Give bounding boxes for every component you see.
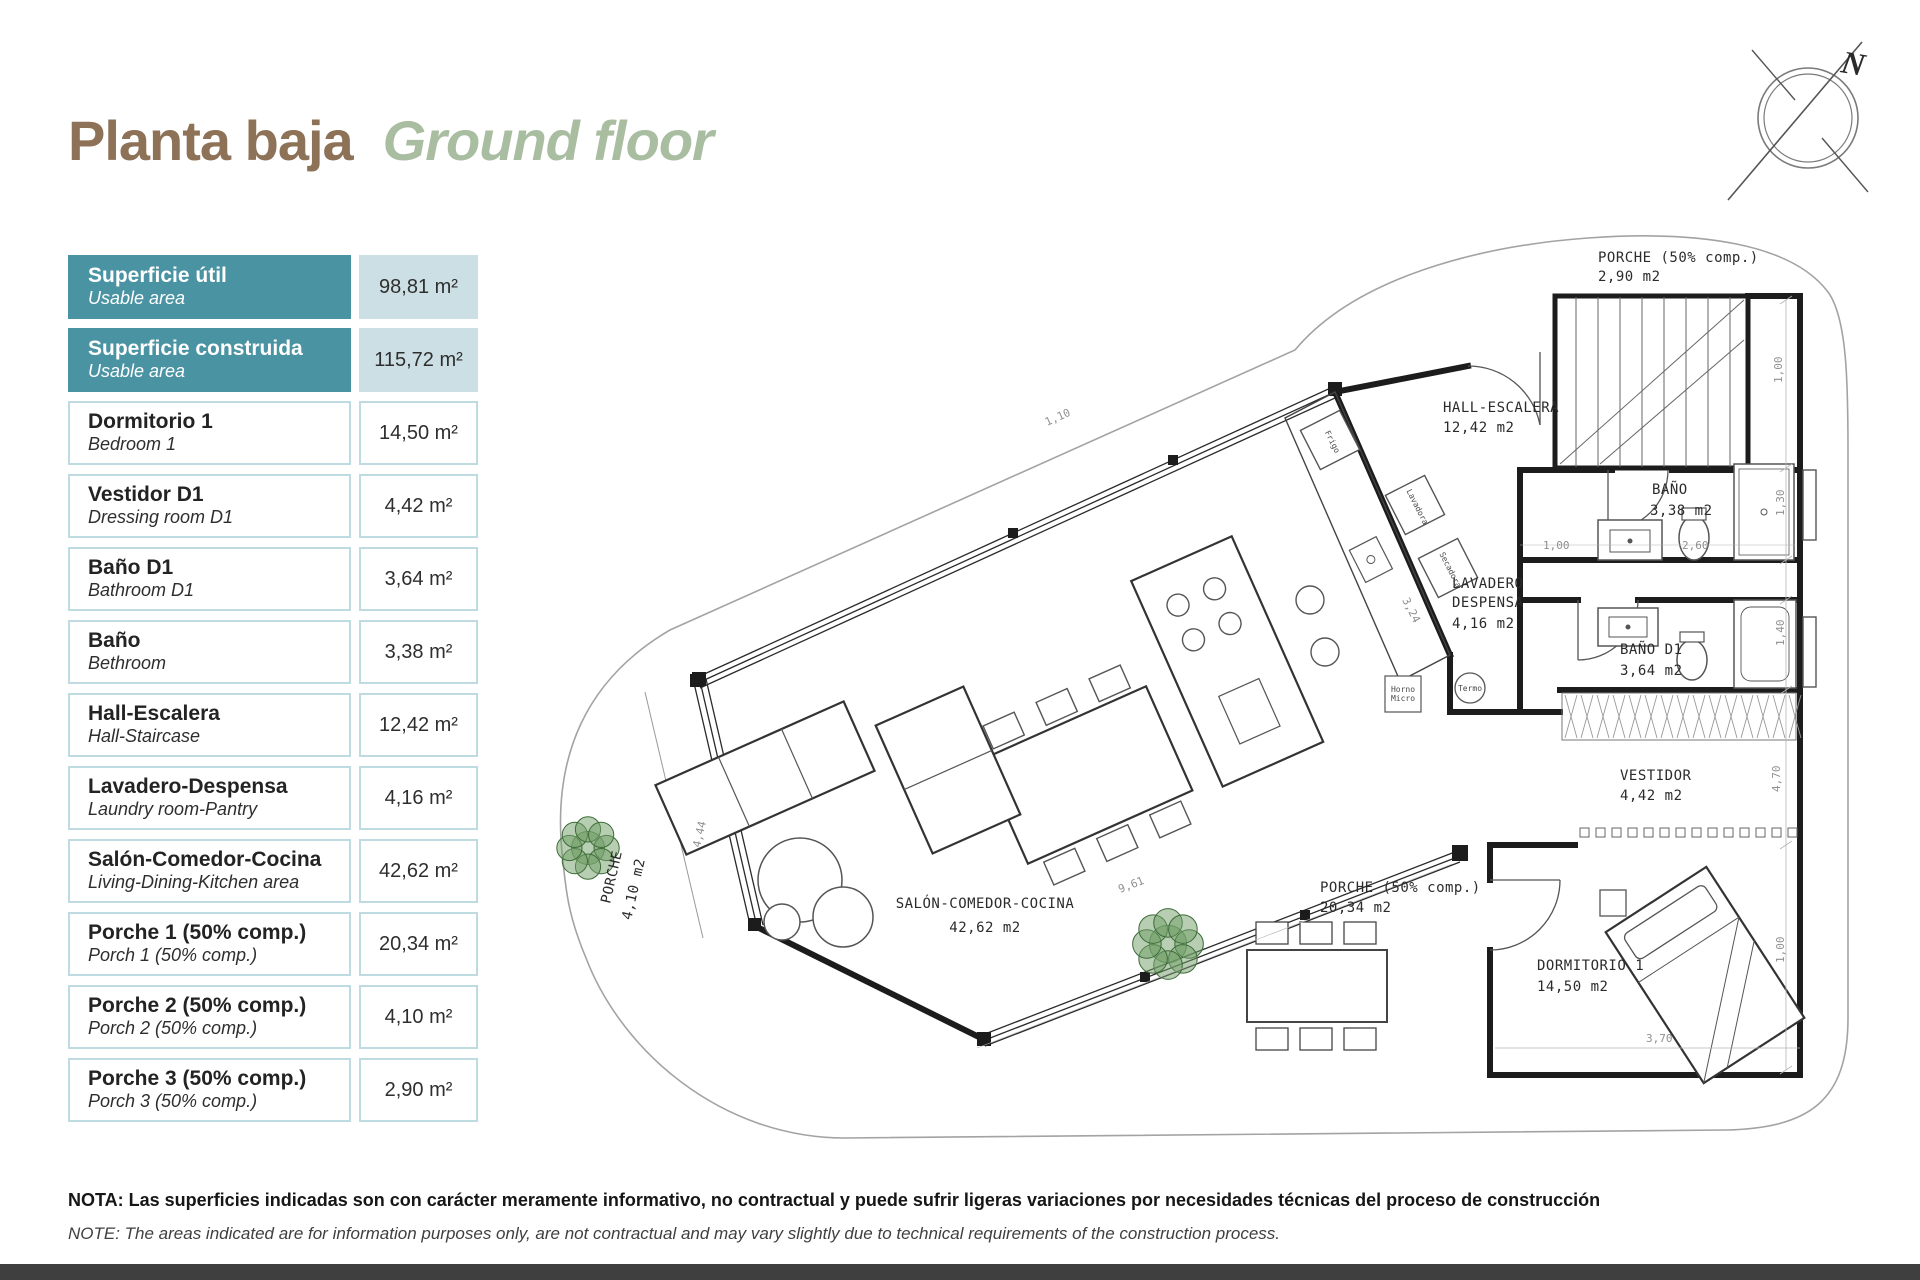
plan-label: 2,90 m2 [1598, 269, 1661, 285]
dimension-label: 1,00 [1543, 539, 1570, 552]
plan-label: Termo [1458, 684, 1482, 693]
plan-label: 12,42 m2 [1443, 420, 1514, 436]
floor-plan: PORCHE (50% comp.)2,90 m2HALL-ESCALERA12… [0, 0, 1920, 1280]
dimension-label: 4,70 [1770, 766, 1783, 793]
towel-radiator-icon [1803, 470, 1816, 540]
plan-label: 4,42 m2 [1620, 788, 1683, 804]
plan-label: HALL-ESCALERA [1443, 400, 1559, 416]
plan-label: VESTIDOR [1620, 768, 1692, 784]
toilet-icon [1679, 516, 1709, 560]
plan-label: SALÓN-COMEDOR-COCINA [896, 894, 1075, 912]
dimension-label: 1,10 [1043, 406, 1072, 429]
plan-label: BAÑO [1652, 481, 1688, 498]
nightstand-icon [1600, 890, 1626, 916]
stool-icon [1296, 586, 1324, 614]
outdoor-table [1247, 922, 1387, 1050]
dimension-label: 3,70 [1646, 1032, 1673, 1045]
plan-label: 4,16 m2 [1452, 616, 1515, 632]
staircase [1555, 296, 1748, 468]
dimension-label: 2,60 [1682, 539, 1709, 552]
towel-radiator-icon [1803, 617, 1816, 687]
dimension-label: 1,00 [1772, 357, 1785, 384]
plan-label: BAÑO D1 [1620, 641, 1683, 658]
plan-label: 3,38 m2 [1650, 503, 1713, 519]
plan-label: Horno [1391, 685, 1415, 694]
dimension-label: 1,00 [1774, 937, 1787, 964]
plan-label: Micro [1391, 694, 1415, 703]
footnote-es: NOTA: Las superficies indicadas son con … [68, 1190, 1868, 1211]
dimension-label: 1,30 [1774, 490, 1787, 517]
plan-label: PORCHE (50% comp.) [1320, 880, 1481, 896]
plan-label: 20,34 m2 [1320, 900, 1391, 916]
footnote-en: NOTE: The areas indicated are for inform… [68, 1224, 1868, 1244]
compass-north-label: N [1838, 43, 1870, 83]
footnote: NOTA: Las superficies indicadas son con … [68, 1190, 1868, 1244]
plan-label: DORMITORIO 1 [1537, 958, 1644, 974]
dimension-label: 1,40 [1774, 620, 1787, 647]
plan-label: 14,50 m2 [1537, 979, 1608, 995]
plan-label: PORCHE (50% comp.) [1598, 250, 1759, 266]
plan-label: 3,64 m2 [1620, 663, 1683, 679]
plan-label: 42,62 m2 [949, 920, 1020, 936]
bottom-strip [0, 1264, 1920, 1280]
plan-label: DESPENSA [1452, 595, 1524, 611]
stool-icon [1311, 638, 1339, 666]
